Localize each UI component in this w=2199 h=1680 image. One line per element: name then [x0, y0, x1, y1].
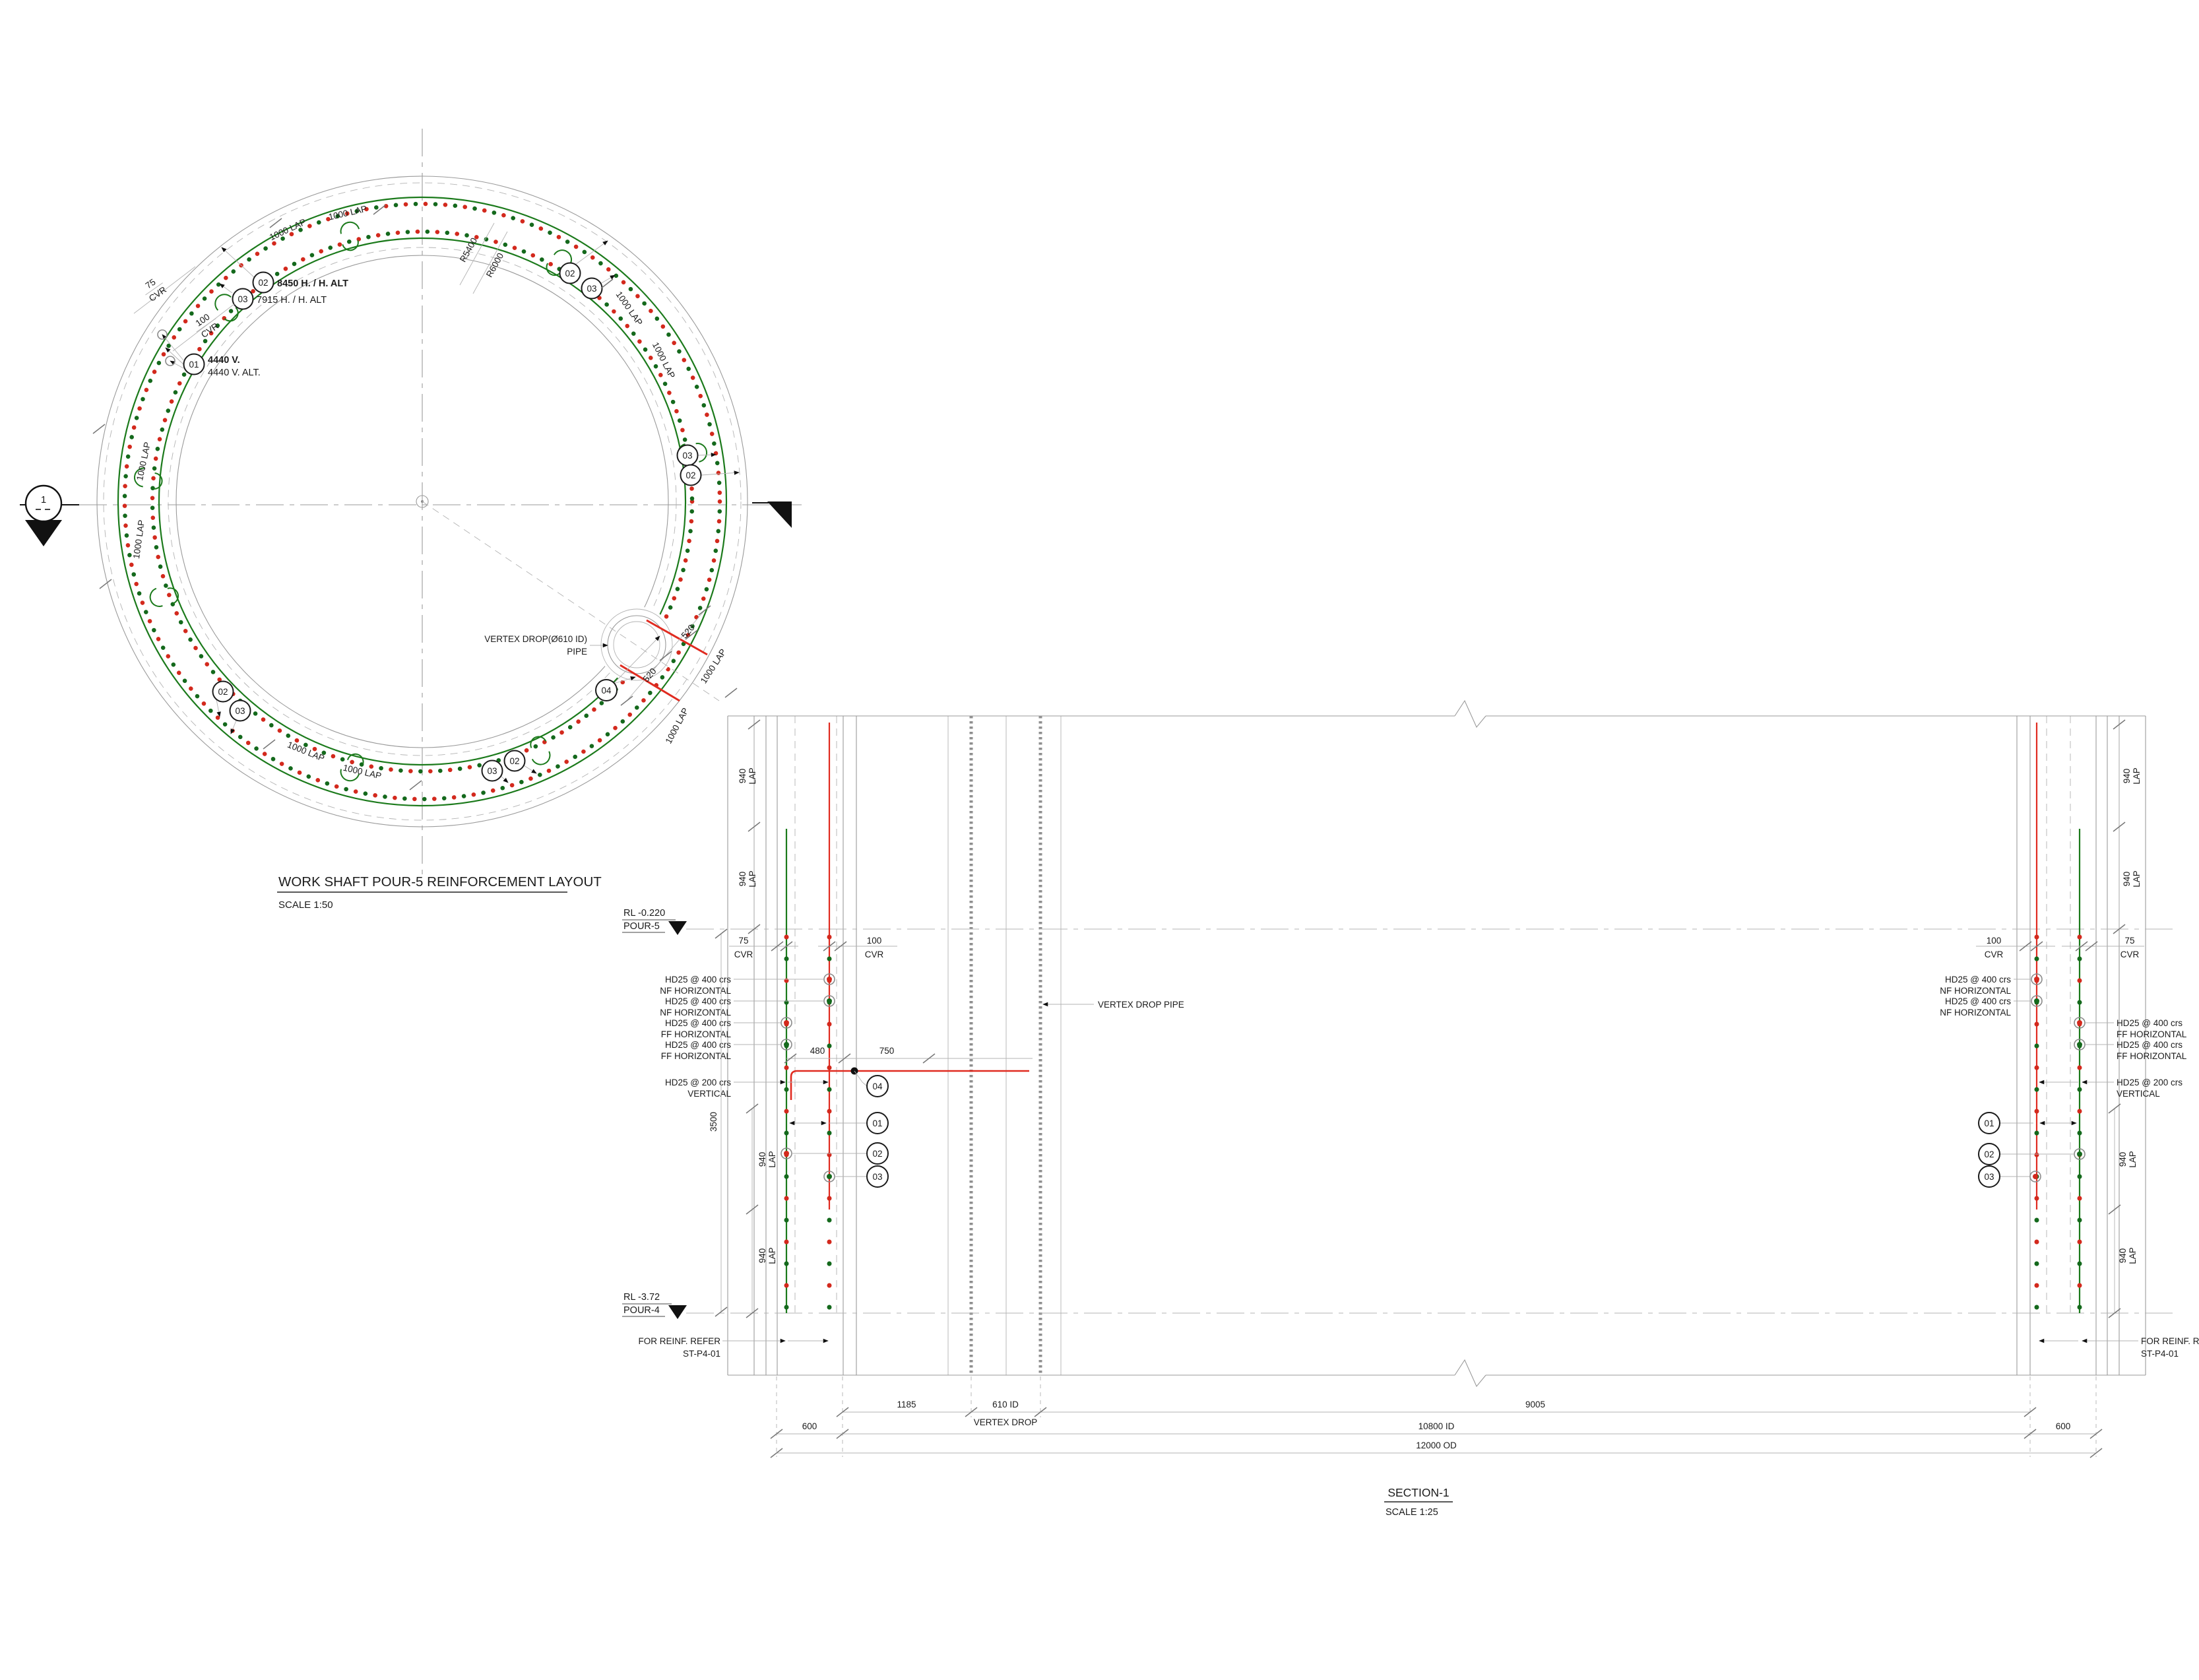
lap-label-6: 1000 LAP	[131, 519, 146, 560]
drawing-sheet: 520 520 VERTEX DROP(Ø610 ID) PIPE 04 02 …	[0, 0, 2199, 1680]
right-nf2-l2: NF HORIZONTAL	[1940, 1008, 2011, 1018]
plan-callout-03r-id: 03	[682, 451, 692, 461]
vertex-pipe-label-line1: VERTEX DROP(Ø610 ID)	[484, 634, 587, 644]
bottom-dims: 1185 610 ID VERTEX DROP 9005 600 10800 I…	[771, 1376, 2102, 1458]
plan-callout-03-topright: 03	[582, 275, 616, 299]
plan-title-block: WORK SHAFT POUR-5 REINFORCEMENT LAYOUT S…	[277, 874, 602, 911]
section-edges	[728, 701, 2146, 1386]
lap940-right-upper: 940 LAP 940 LAP	[2113, 720, 2142, 934]
left-vert-l2: VERTICAL	[687, 1089, 731, 1099]
right-ff2-l1: HD25 @ 400 crs	[2117, 1040, 2183, 1050]
left-bar-labels: HD25 @ 400 crs NF HORIZONTAL HD25 @ 400 …	[660, 975, 828, 1099]
lap940-lu1-u: LAP	[748, 767, 757, 785]
plan-callout-03bl-id: 03	[235, 706, 245, 716]
left-callout-04: 04	[872, 1082, 883, 1091]
section-scale: SCALE 1:25	[1386, 1507, 1438, 1518]
left-ff1-l2: FF HORIZONTAL	[661, 1029, 732, 1039]
lap940-ru1-u: LAP	[2132, 767, 2142, 785]
plan-scale: SCALE 1:50	[278, 899, 333, 911]
left-nf1-l2: NF HORIZONTAL	[660, 986, 731, 996]
plan-callout-01-line2: 4440 V. ALT.	[208, 368, 261, 378]
rl-top-pour: POUR-5	[623, 921, 660, 932]
plan-callout-02-text: 8450 H. / H. ALT	[277, 278, 348, 289]
section-view: HD25 @ 400 crs NF HORIZONTAL HD25 @ 400 …	[622, 701, 2199, 1518]
section-title-block: SECTION-1 SCALE 1:25	[1384, 1486, 1453, 1518]
dim-480: 480	[810, 1046, 825, 1056]
lap-label-10: 1000 LAP	[663, 706, 690, 745]
left-ff2-l2: FF HORIZONTAL	[661, 1051, 732, 1061]
dim-610-l2: VERTEX DROP	[974, 1417, 1038, 1427]
cvr100-left-unit: CVR	[865, 950, 884, 959]
dim-480-750: 480 750	[784, 1046, 1033, 1063]
dim-750: 750	[879, 1046, 895, 1056]
lap-label-3: 1000 LAP	[614, 290, 645, 327]
lap940-rl2-v: 940	[2118, 1248, 2128, 1264]
left-callout-03: 03	[872, 1172, 882, 1182]
right-callout-01: 01	[1984, 1118, 1994, 1128]
refer-left-l2: ST-P4-01	[683, 1349, 720, 1359]
lap940-right-lower: 940 LAP 940 LAP	[2109, 1104, 2138, 1318]
right-ff1-l2: FF HORIZONTAL	[2117, 1029, 2187, 1039]
cvr75-left-unit: CVR	[734, 950, 753, 959]
right-nf2-l1: HD25 @ 400 crs	[1945, 996, 2011, 1006]
plan-callout-01-id: 01	[189, 360, 199, 370]
lap940-ll2-v: 940	[757, 1248, 767, 1264]
plan-callout-02-id: 02	[258, 278, 268, 288]
level-triangle-top	[668, 921, 687, 935]
cvr100-left-value: 100	[867, 936, 882, 946]
dim-600-left: 600	[802, 1421, 817, 1431]
dim-10800: 10800 ID	[1418, 1421, 1455, 1431]
rl-bottom-pour: POUR-4	[623, 1305, 660, 1316]
lap940-left-upper: 940 LAP 940 LAP	[738, 720, 760, 934]
lap940-lu1-v: 940	[738, 769, 748, 784]
lap940-ru2-v: 940	[2122, 872, 2132, 887]
vertex-pipe-label: VERTEX DROP(Ø610 ID) PIPE	[484, 634, 608, 657]
plan-callout-03-bottomleft: 03	[230, 701, 251, 734]
lap940-rl1-u: LAP	[2128, 1151, 2138, 1168]
refer-note-left: FOR REINF. REFER ST-P4-01	[638, 1336, 828, 1359]
plan-callout-02tr-id: 02	[565, 269, 575, 278]
right-nf1-l2: NF HORIZONTAL	[1940, 986, 2011, 996]
vertex-drop-pipe-section	[948, 716, 1061, 1375]
rl-pour5-block: RL -0.220 POUR-5	[622, 908, 687, 935]
dim-12000: 12000 OD	[1416, 1440, 1457, 1450]
right-wall-rebar	[2037, 723, 2080, 1313]
rl-bottom-value: RL -3.72	[623, 1292, 660, 1303]
plan-cvr75-value: 75	[144, 277, 158, 291]
dim-610-l1: 610 ID	[992, 1400, 1019, 1409]
lap940-ll2-u: LAP	[767, 1247, 777, 1264]
right-callout-03: 03	[1984, 1172, 1994, 1182]
section-cut-number: 1	[41, 494, 46, 505]
right-section-callouts: 01 02 03	[1979, 1113, 2076, 1187]
radius-labels: R5400 R6000	[458, 223, 507, 294]
plan-callout-02r-id: 02	[685, 470, 695, 480]
lap940-ll1-u: LAP	[767, 1151, 777, 1168]
section-cut-marker: 1	[20, 486, 79, 546]
plan-callout-01-line1: 4440 V.	[208, 355, 240, 366]
cvr100-right-value: 100	[1987, 936, 2002, 946]
lap940-ru1-v: 940	[2122, 769, 2132, 784]
left-callout-02: 02	[872, 1149, 882, 1159]
drawing-canvas: 520 520 VERTEX DROP(Ø610 ID) PIPE 04 02 …	[0, 0, 2199, 1680]
cvr100-right-unit: CVR	[1985, 950, 2004, 959]
right-ff1-l1: HD25 @ 400 crs	[2117, 1018, 2183, 1028]
right-bar-labels: HD25 @ 400 crs NF HORIZONTAL HD25 @ 400 …	[1940, 975, 2186, 1099]
lap940-lu2-u: LAP	[748, 870, 757, 888]
radius-r6000: R6000	[484, 251, 505, 279]
right-vert-l2: VERTICAL	[2117, 1089, 2160, 1099]
refer-right-l1: FOR REINF. REFER	[2141, 1336, 2199, 1346]
lap-label-4: 1000 LAP	[651, 340, 677, 380]
lap-label-5: 1000 LAP	[135, 441, 152, 481]
left-callout-01: 01	[872, 1118, 882, 1128]
left-nf2-l2: NF HORIZONTAL	[660, 1008, 731, 1018]
bar-04-bend	[791, 1071, 1029, 1100]
vertex-pipe-section-text: VERTEX DROP PIPE	[1098, 1000, 1184, 1010]
plan-lap-labels: 1000 LAP 1000 LAP 1000 LAP 1000 LAP 1000…	[93, 204, 737, 790]
plan-callout-03-bottomright: 03	[482, 761, 509, 783]
dim-1185: 1185	[897, 1400, 916, 1409]
cvr75-right-value: 75	[2124, 936, 2134, 946]
plan-callout-03tr-id: 03	[587, 284, 596, 294]
lap940-ll1-v: 940	[757, 1152, 767, 1167]
lap940-ru2-u: LAP	[2132, 870, 2142, 888]
radius-r5400: R5400	[458, 236, 479, 264]
left-wall-rebar	[786, 723, 1029, 1313]
cvr75-left-value: 75	[738, 936, 748, 946]
level-triangle-bottom	[668, 1305, 687, 1319]
plan-callout-02-bottomright: 02	[505, 751, 537, 774]
lap940-left-lower: 940 LAP 940 LAP	[746, 1104, 777, 1318]
left-section-callouts: 04 01 02 03	[790, 1071, 888, 1187]
vertex-pipe-label-line2: PIPE	[567, 647, 587, 657]
lap940-rl2-u: LAP	[2128, 1247, 2138, 1264]
section-cut-arrow-right	[752, 501, 792, 528]
right-nf1-l1: HD25 @ 400 crs	[1945, 975, 2011, 985]
dim-600-right: 600	[2056, 1421, 2071, 1431]
refer-right-l2: ST-P4-01	[2141, 1349, 2179, 1359]
section-title: SECTION-1	[1387, 1486, 1449, 1499]
plan-callout-04-id: 04	[601, 686, 612, 695]
refer-left-l1: FOR REINF. REFER	[638, 1336, 720, 1346]
cvr-dims: 75 CVR 100 CVR 100 CVR 75 CVR	[729, 936, 2144, 959]
plan-callout-02bl-id: 02	[218, 687, 228, 697]
lap940-lu2-v: 940	[738, 872, 748, 887]
plan-callout-02br-id: 02	[509, 756, 519, 766]
plan-callout-03-text: 7915 H. / H. ALT	[257, 295, 327, 306]
right-ff2-l2: FF HORIZONTAL	[2117, 1051, 2187, 1061]
plan-view: 520 520 VERTEX DROP(Ø610 ID) PIPE 04 02 …	[20, 129, 802, 911]
lap940-rl1-v: 940	[2118, 1152, 2128, 1167]
dim-9005: 9005	[1525, 1400, 1545, 1409]
dim-3500: 3500	[709, 1112, 718, 1132]
plan-callout-03-id: 03	[238, 294, 247, 304]
plan-callout-03br-id: 03	[487, 766, 497, 776]
right-callout-02: 02	[1984, 1149, 1994, 1159]
plan-callout-02-right: 02	[681, 465, 740, 486]
plan-callout-03-right: 03	[678, 445, 717, 466]
vertex-pipe-label-section: VERTEX DROP PIPE	[1043, 1000, 1184, 1010]
vertex-drop-pipe-plan	[598, 606, 675, 683]
rl-top-value: RL -0.220	[623, 908, 665, 919]
right-vert-l1: HD25 @ 200 crs	[2117, 1078, 2183, 1087]
bar-markers	[781, 974, 2085, 1182]
cvr75-right-unit: CVR	[2120, 950, 2140, 959]
rl-pour4-block: RL -3.72 POUR-4	[622, 1292, 687, 1319]
plan-title: WORK SHAFT POUR-5 REINFORCEMENT LAYOUT	[278, 874, 602, 889]
